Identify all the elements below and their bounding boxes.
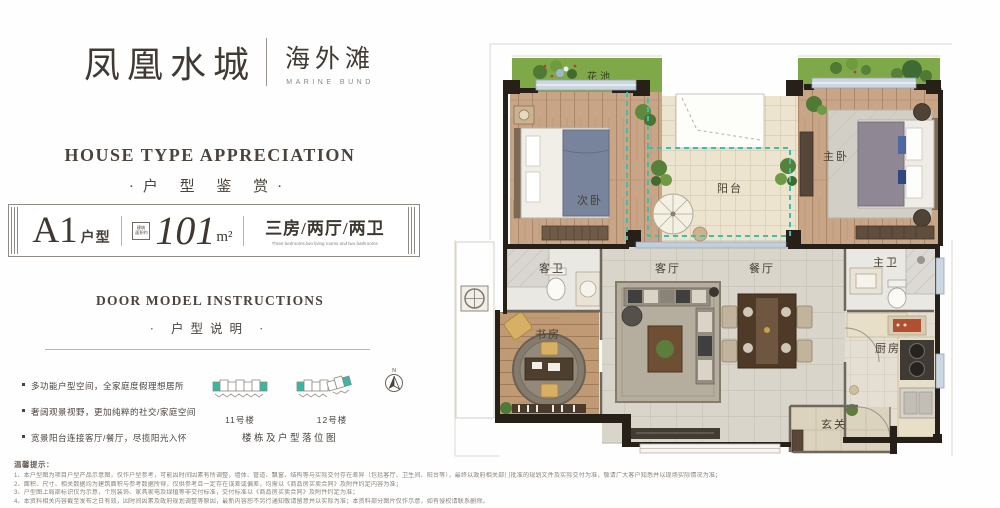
kitchen-label: 厨房 bbox=[875, 342, 901, 355]
feature-item: 奢阔观景视野，更加纯粹的社交/家庭空间 bbox=[22, 406, 196, 418]
guest-bath-label: 客卫 bbox=[539, 261, 565, 275]
living-room-label: 客厅 bbox=[655, 261, 681, 275]
brand-name: 凤凰水城 bbox=[84, 36, 256, 88]
second-bedroom-label: 次卧 bbox=[577, 193, 603, 207]
area-unit: m² bbox=[216, 229, 232, 246]
disclaimer-line: 3、户型图上局部标识仅为示意，个别装饰、家具家电及绿植等非交付标准，交付标准以《… bbox=[14, 489, 974, 498]
brand-subname-en: MARINE BUND bbox=[286, 79, 374, 86]
ac-unit bbox=[456, 242, 494, 418]
banner-left-hatch bbox=[11, 207, 20, 254]
area-value: 101 bbox=[155, 211, 215, 251]
brand-subname: 海外滩 bbox=[285, 39, 375, 75]
banner-divider bbox=[243, 216, 244, 246]
feature-item: 宽景阳台连接客厅/餐厅，尽揽阳光入怀 bbox=[22, 432, 196, 444]
poster-page: 凤凰水城 海外滩 MARINE BUND HOUSE TYPE APPRECIA… bbox=[0, 0, 1000, 508]
area-group: 建筑 面积约 101 m² bbox=[132, 211, 232, 251]
area-note-line2: 面积约 bbox=[135, 231, 148, 235]
building-11-label: 11号楼 bbox=[200, 414, 280, 426]
banner-right-hatch bbox=[408, 207, 417, 254]
building-12-label: 12号楼 bbox=[292, 414, 372, 426]
disclaimer-line: 4、本资料相关内容截至发布之日有效，因时间因素及政府规划调整等原因，最新内容恕不… bbox=[14, 498, 974, 507]
area-note-box: 建筑 面积约 bbox=[132, 222, 150, 240]
compass-icon: N bbox=[382, 366, 406, 396]
section-appreciation: HOUSE TYPE APPRECIATION ·户 型 鉴 赏· bbox=[30, 145, 390, 196]
section-instructions: DOOR MODEL INSTRUCTIONS · 户型说明 · bbox=[30, 293, 390, 337]
feature-item: 多功能户型空间，全家庭度假理想居所 bbox=[22, 380, 196, 392]
rooms-cn: 三房/两厅/两卫 bbox=[265, 214, 384, 239]
brand-divider bbox=[266, 38, 267, 86]
housetype-banner: A1 户型 建筑 面积约 101 m² 三房/两厅/两卫 Three bedro… bbox=[8, 204, 420, 257]
area-note-line1: 建筑 bbox=[137, 226, 146, 230]
section-title-en: DOOR MODEL INSTRUCTIONS bbox=[30, 293, 390, 309]
buildings-illustration bbox=[205, 372, 375, 412]
floorplan: 花池 bbox=[440, 34, 1000, 474]
compass-n: N bbox=[392, 368, 396, 374]
balcony-label: 阳台 bbox=[717, 181, 743, 195]
dining-room-label: 餐厅 bbox=[749, 261, 775, 275]
balcony-void bbox=[676, 94, 764, 148]
banner-divider bbox=[121, 216, 122, 246]
housetype-code-suffix: 户型 bbox=[81, 227, 111, 247]
section-title-en: HOUSE TYPE APPRECIATION bbox=[30, 145, 390, 166]
rooms-en: Three bedrooms,two living rooms and two … bbox=[272, 242, 378, 247]
section-title-cn: ·户 型 鉴 赏· bbox=[30, 175, 390, 196]
buildings-caption: 楼栋及户型落位图 bbox=[200, 430, 380, 444]
housetype-code-value: A1 bbox=[32, 212, 77, 249]
brand-logo: 凤凰水城 海外滩 MARINE BUND bbox=[84, 36, 375, 88]
rooms-group: 三房/两厅/两卫 Three bedrooms,two living rooms… bbox=[254, 214, 395, 247]
study-label: 书房 bbox=[535, 328, 561, 341]
master-bath-label: 主卫 bbox=[873, 256, 899, 269]
entry-label: 玄关 bbox=[821, 417, 847, 431]
feature-list: 多功能户型空间，全家庭度假理想居所 奢阔观景视野，更加纯粹的社交/家庭空间 宽景… bbox=[22, 380, 196, 458]
housetype-code: A1 户型 bbox=[32, 212, 110, 249]
master-bedroom-label: 主卧 bbox=[823, 150, 849, 163]
section-title-cn: · 户型说明 · bbox=[30, 318, 390, 337]
section-rule bbox=[45, 349, 370, 350]
disclaimer-line: 2、面积、尺寸、相关数据均为建筑面积与参考数据所得，仅供参考且一定存在误差或偏差… bbox=[14, 481, 974, 490]
